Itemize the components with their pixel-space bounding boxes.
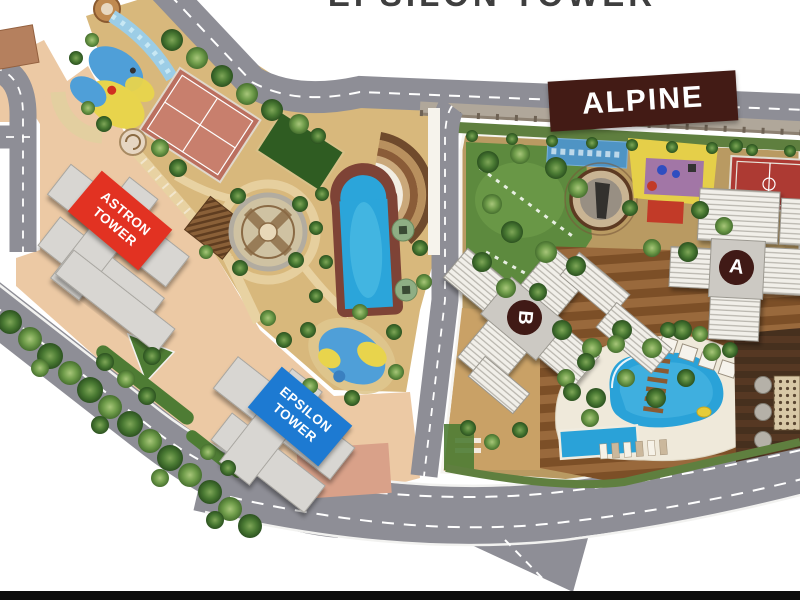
corner-building	[0, 25, 39, 69]
monument-circle	[565, 163, 637, 235]
pool-floaty	[697, 407, 711, 417]
spiral-feature	[120, 129, 146, 155]
site-plan-image: EPSILON TOWER ASTRON TOWER EPSILON TOWER…	[0, 0, 800, 600]
page-title: EPSILON TOWER	[192, 0, 792, 14]
bottom-letterbox-bar	[0, 591, 800, 600]
